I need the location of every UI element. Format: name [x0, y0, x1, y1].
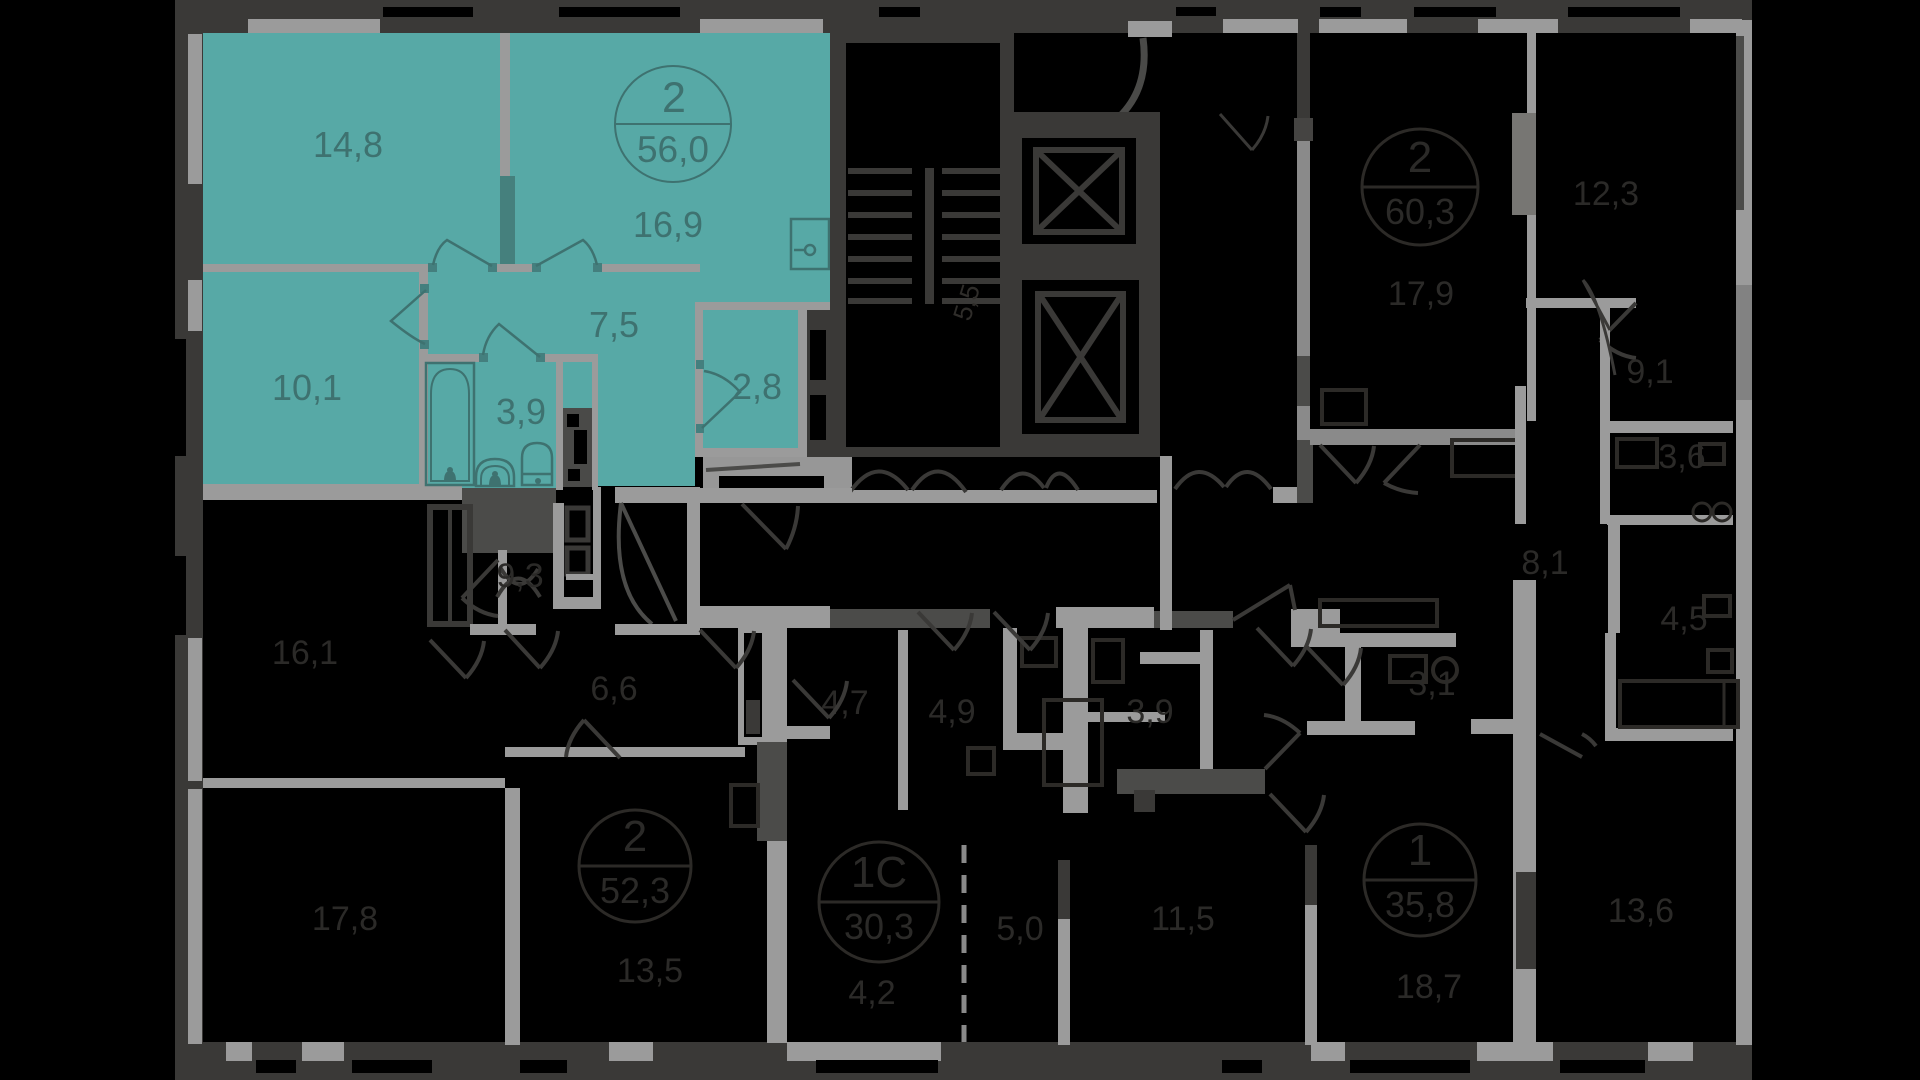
svg-text:7,5: 7,5	[589, 304, 639, 345]
svg-text:10,1: 10,1	[272, 367, 342, 408]
svg-text:3,1: 3,1	[1408, 665, 1455, 703]
svg-text:2: 2	[662, 74, 686, 122]
svg-text:13,6: 13,6	[1608, 892, 1674, 930]
svg-text:3,9: 3,9	[1126, 693, 1173, 731]
svg-text:8,1: 8,1	[1521, 544, 1568, 582]
svg-text:18,7: 18,7	[1396, 968, 1462, 1006]
svg-text:52,3: 52,3	[600, 870, 670, 911]
svg-text:4,9: 4,9	[928, 693, 975, 731]
svg-text:4,2: 4,2	[848, 974, 895, 1012]
svg-text:3,6: 3,6	[1658, 438, 1705, 476]
svg-text:11,5: 11,5	[1151, 900, 1215, 938]
svg-text:3,9: 3,9	[496, 391, 546, 432]
svg-text:1: 1	[1408, 826, 1432, 875]
svg-text:2: 2	[1408, 133, 1432, 182]
svg-text:12,3: 12,3	[1573, 175, 1639, 213]
svg-text:2: 2	[623, 812, 647, 861]
svg-text:2,8: 2,8	[732, 366, 782, 407]
svg-text:9,3: 9,3	[496, 557, 543, 595]
svg-text:6,6: 6,6	[590, 670, 637, 708]
svg-text:17,9: 17,9	[1388, 275, 1454, 313]
svg-text:16,9: 16,9	[633, 204, 703, 245]
svg-text:14,8: 14,8	[313, 124, 383, 165]
svg-text:4,5: 4,5	[1660, 600, 1707, 638]
svg-text:5,0: 5,0	[996, 910, 1043, 948]
svg-text:13,5: 13,5	[617, 952, 683, 990]
svg-text:9,1: 9,1	[1626, 353, 1673, 391]
svg-text:16,1: 16,1	[272, 634, 338, 672]
svg-text:35,8: 35,8	[1385, 884, 1455, 925]
svg-text:1С: 1С	[851, 848, 907, 897]
svg-text:30,3: 30,3	[844, 906, 914, 947]
svg-text:17,8: 17,8	[312, 900, 378, 938]
svg-text:60,3: 60,3	[1385, 191, 1455, 232]
svg-text:56,0: 56,0	[637, 129, 709, 170]
